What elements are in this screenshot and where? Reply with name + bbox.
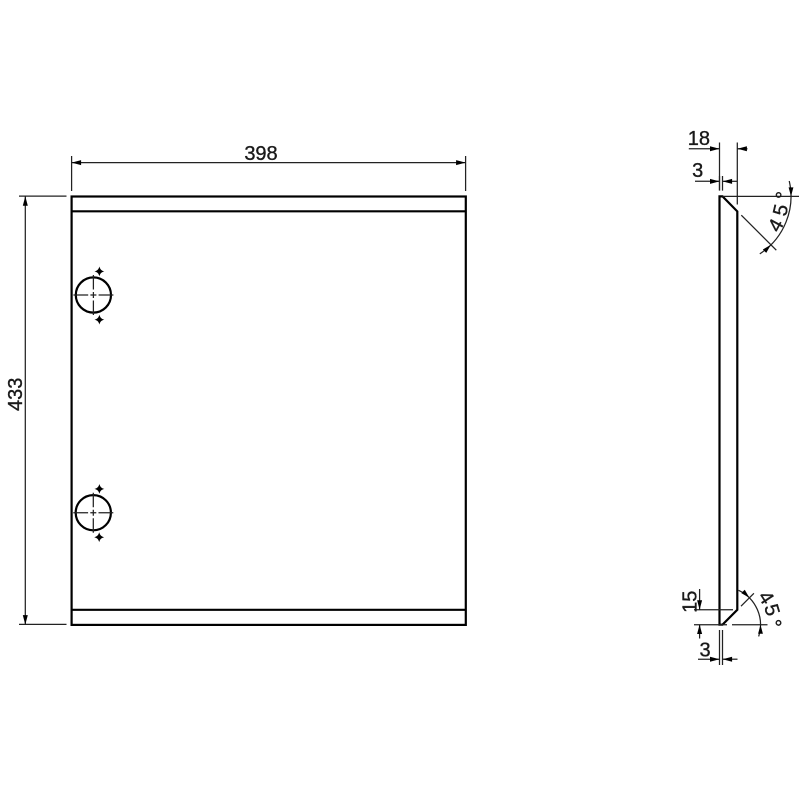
svg-text:15: 15 [679, 591, 701, 613]
svg-text:3: 3 [692, 160, 703, 182]
svg-text:433: 433 [5, 378, 27, 411]
svg-text:°: ° [773, 191, 795, 199]
svg-text:398: 398 [244, 143, 277, 165]
svg-text:3: 3 [699, 639, 710, 661]
svg-text:18: 18 [688, 128, 710, 150]
svg-text:°: ° [762, 619, 784, 628]
